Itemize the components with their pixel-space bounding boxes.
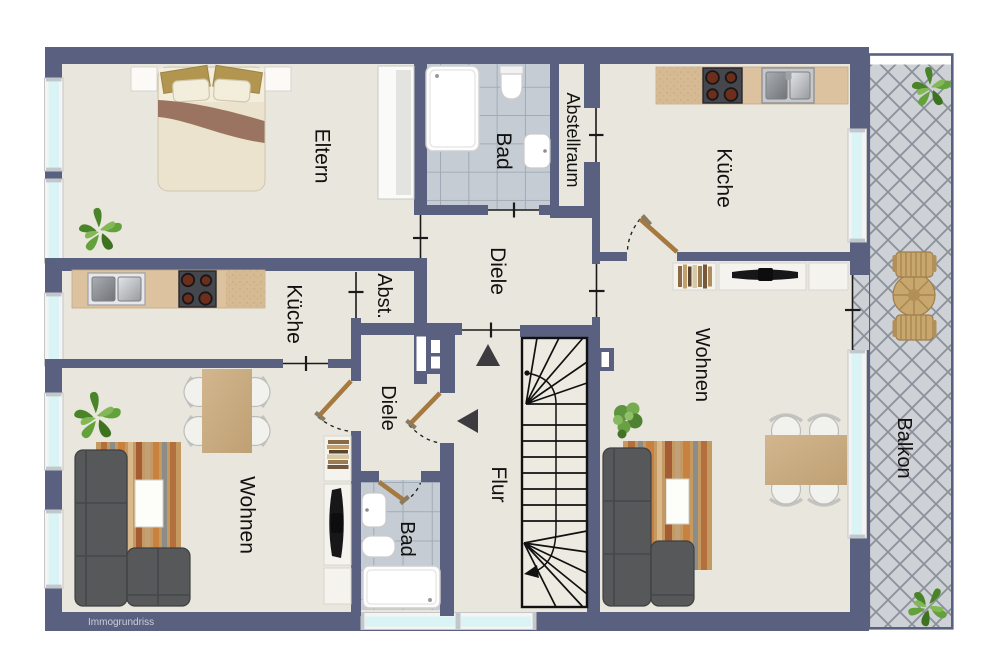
svg-text:Bad: Bad bbox=[492, 132, 515, 169]
svg-text:Immogrundriss: Immogrundriss bbox=[88, 617, 154, 628]
svg-text:Balkon: Balkon bbox=[893, 417, 915, 478]
svg-text:Abst.: Abst. bbox=[373, 273, 395, 319]
svg-text:Abstellraum: Abstellraum bbox=[563, 92, 583, 187]
svg-text:Eltern: Eltern bbox=[311, 129, 334, 184]
svg-text:Flur: Flur bbox=[487, 466, 510, 502]
svg-text:Bad: Bad bbox=[396, 521, 418, 557]
svg-text:Wohnen: Wohnen bbox=[236, 476, 259, 554]
svg-text:Küche: Küche bbox=[713, 148, 736, 208]
svg-text:Wohnen: Wohnen bbox=[691, 328, 713, 402]
svg-text:Diele: Diele bbox=[486, 247, 509, 295]
svg-text:Diele: Diele bbox=[377, 385, 399, 431]
svg-text:Küche: Küche bbox=[283, 284, 306, 344]
